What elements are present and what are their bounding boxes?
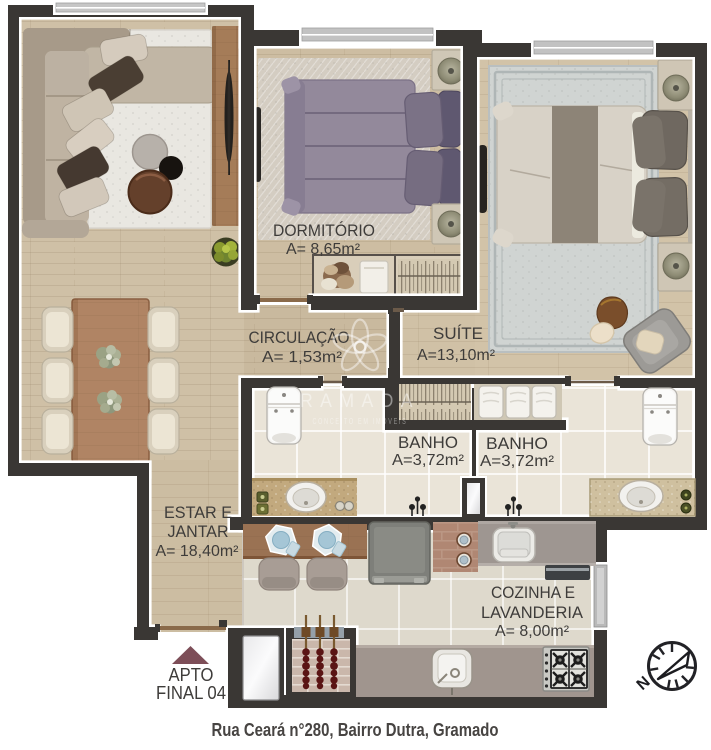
svg-text:RAMADA: RAMADA: [300, 391, 420, 412]
svg-text:DORMITÓRIO: DORMITÓRIO: [273, 221, 375, 240]
svg-text:FINAL 04: FINAL 04: [156, 683, 226, 703]
svg-text:SUÍTE: SUÍTE: [433, 324, 483, 343]
svg-text:A=13,10m²: A=13,10m²: [417, 347, 495, 364]
svg-text:A= 1,53m²: A= 1,53m²: [262, 349, 342, 366]
svg-text:BANHO: BANHO: [398, 433, 458, 452]
svg-text:COZINHA E: COZINHA E: [491, 583, 575, 602]
svg-text:A= 18,40m²: A= 18,40m²: [156, 543, 239, 560]
svg-text:ESTAR E: ESTAR E: [164, 503, 232, 522]
svg-text:CONCEITO EM IMÓVEIS: CONCEITO EM IMÓVEIS: [313, 417, 408, 426]
svg-text:A= 8,65m²: A= 8,65m²: [286, 241, 360, 258]
svg-text:LAVANDERIA: LAVANDERIA: [481, 603, 584, 622]
svg-text:Rua Ceará n°280, Bairro Dutra,: Rua Ceará n°280, Bairro Dutra, Gramado: [212, 719, 499, 740]
svg-text:APTO: APTO: [169, 665, 214, 685]
svg-text:BANHO: BANHO: [486, 434, 548, 453]
svg-text:JANTAR: JANTAR: [168, 522, 229, 541]
svg-text:A=3,72m²: A=3,72m²: [480, 453, 554, 470]
svg-text:A=3,72m²: A=3,72m²: [392, 452, 464, 469]
svg-text:A= 8,00m²: A= 8,00m²: [495, 623, 569, 640]
